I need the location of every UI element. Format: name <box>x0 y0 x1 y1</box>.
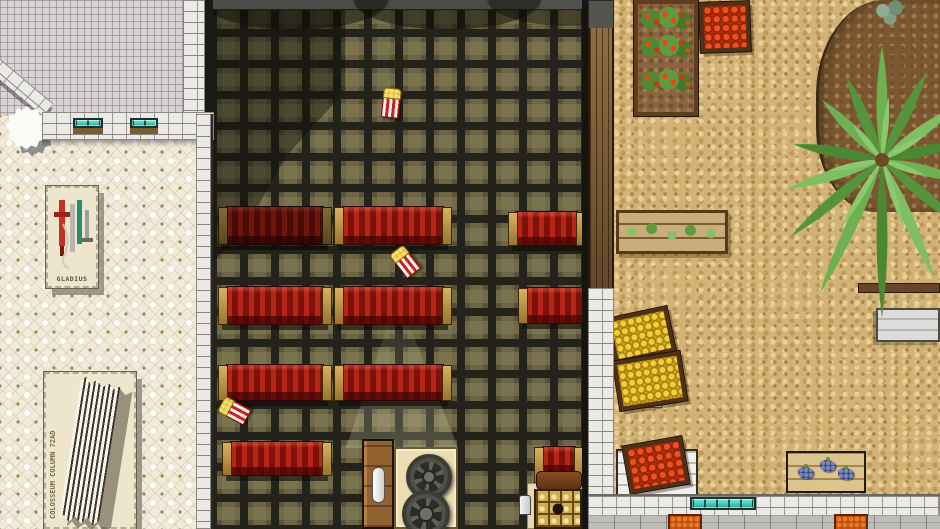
popcorn-box[interactable] <box>381 93 401 119</box>
bench-armrest <box>442 365 452 401</box>
right-wall-top <box>588 0 614 30</box>
bench-armrest <box>442 287 452 325</box>
teal-window <box>73 118 103 128</box>
bench-cushion <box>226 286 324 325</box>
bench-armrest <box>322 287 332 325</box>
bench-armrest <box>508 212 518 246</box>
bench-armrest <box>334 207 344 245</box>
projector-cabinet[interactable] <box>362 439 394 529</box>
bench-armrest <box>222 442 232 476</box>
bench-cushion <box>226 364 324 401</box>
theater-bench[interactable] <box>534 446 584 490</box>
flower-cluster <box>640 66 692 96</box>
theater-bench[interactable] <box>218 286 332 332</box>
bench-armrest <box>218 207 228 245</box>
theater-bench[interactable] <box>508 211 586 253</box>
bench-shadow <box>538 482 580 488</box>
bench-cushion <box>342 206 444 245</box>
column-label: COLOSSEUM COLUMN 72AD <box>49 382 57 519</box>
theater-bench[interactable] <box>222 441 332 483</box>
right-wall-wood <box>588 28 614 290</box>
window-planter <box>73 128 103 134</box>
orange-pot[interactable] <box>668 514 702 529</box>
bench-cushion <box>226 206 324 245</box>
teal-window <box>130 118 158 128</box>
bottom-pavement <box>588 515 940 529</box>
crate-tomatoes[interactable] <box>622 436 689 494</box>
grape-bunch[interactable] <box>820 460 836 472</box>
palm-trunk <box>875 153 889 167</box>
white-bin[interactable] <box>519 495 531 515</box>
game-map: GLADIUS COLOSSEUM COLUMN 72AD <box>0 0 940 529</box>
palm-frond <box>877 160 888 318</box>
plaza-wall-column <box>183 0 205 116</box>
gladius-label: GLADIUS <box>48 275 96 283</box>
museum-wall-row <box>42 112 214 140</box>
bench-armrest <box>322 365 332 401</box>
theater-bench[interactable] <box>334 364 452 408</box>
wall-gap-shadow <box>205 0 213 116</box>
bench-armrest <box>322 442 332 476</box>
bench-cushion <box>342 286 444 325</box>
bench-armrest <box>442 207 452 245</box>
window-planter <box>130 128 158 134</box>
theater-bench[interactable] <box>218 206 332 252</box>
courtyard-bottom-wall <box>588 494 940 516</box>
column-display-case[interactable]: COLOSSEUM COLUMN 72AD <box>44 372 136 529</box>
flower-bed[interactable] <box>634 0 698 116</box>
theater-bench[interactable] <box>334 206 452 252</box>
bench-cushion <box>230 441 324 476</box>
grape-bunch[interactable] <box>838 468 854 480</box>
gas-cylinder <box>372 467 385 503</box>
grape-table[interactable] <box>786 451 866 493</box>
wall-shadow <box>42 140 214 147</box>
bench-armrest <box>322 207 332 245</box>
swords-icon <box>50 194 96 276</box>
crate-tomatoes[interactable] <box>699 1 751 53</box>
gladius-display-case[interactable]: GLADIUS <box>46 186 98 288</box>
right-wall-stone <box>588 288 614 529</box>
theater-left-wall <box>196 114 213 529</box>
bench-armrest <box>534 447 544 483</box>
bench-armrest <box>218 287 228 325</box>
bench-armrest <box>334 287 344 325</box>
awning-scallop-shadow <box>213 0 585 32</box>
theater-bench[interactable] <box>334 286 452 332</box>
flower-cluster <box>640 32 692 62</box>
bench-cushion <box>516 211 578 246</box>
bench-cushion <box>342 364 444 401</box>
gold-mosaic-stand[interactable] <box>534 489 582 529</box>
bench-armrest <box>334 365 344 401</box>
orange-pot[interactable] <box>834 514 868 529</box>
crate-lemons[interactable] <box>613 351 688 411</box>
popcorn-box[interactable] <box>393 249 422 279</box>
bench-cushion <box>542 446 576 474</box>
seedling-planter[interactable] <box>616 210 728 254</box>
bench-armrest <box>518 288 528 324</box>
teal-window <box>690 497 756 510</box>
bench-armrest <box>218 365 228 401</box>
bench-cushion <box>526 287 586 324</box>
palm-tree[interactable] <box>770 10 940 340</box>
flower-cluster <box>640 4 692 34</box>
grape-bunch[interactable] <box>798 467 814 479</box>
